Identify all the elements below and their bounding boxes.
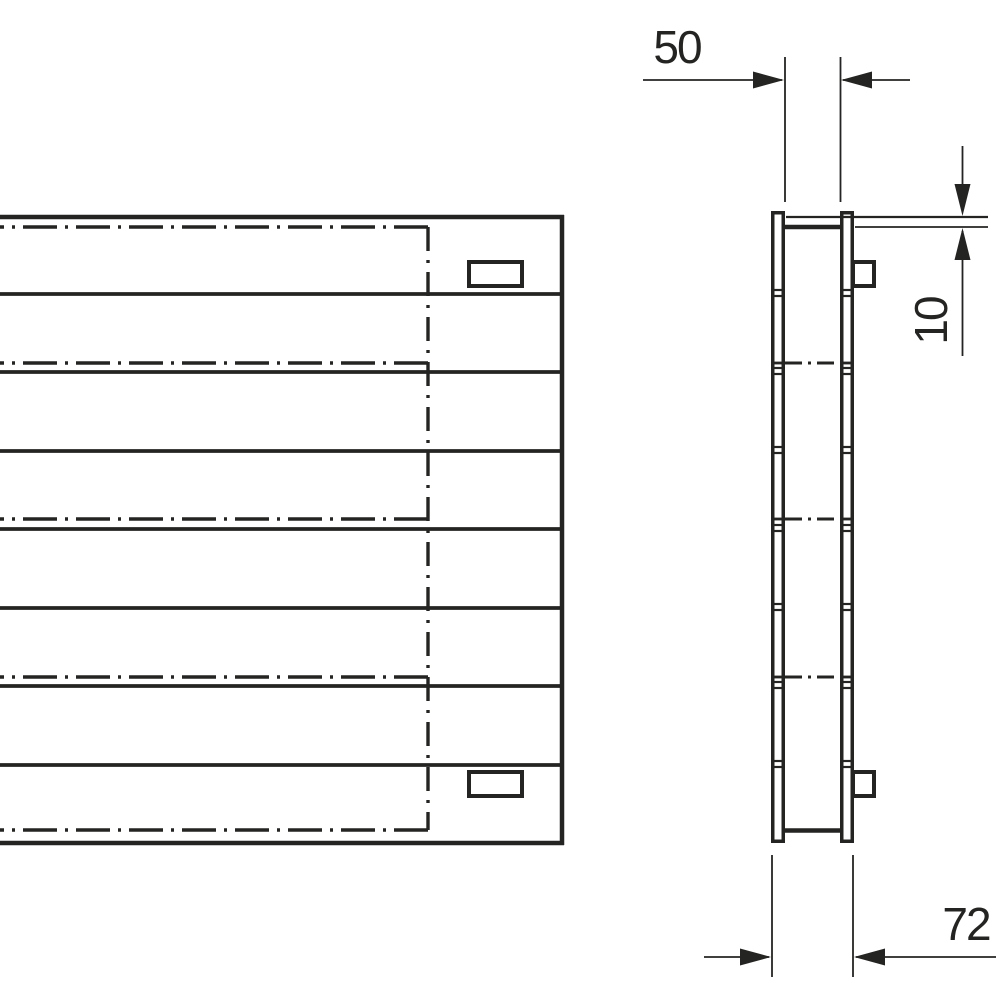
- front-bracket-bottom: [469, 772, 522, 796]
- dim50-arrow-right-icon: [841, 72, 872, 89]
- dim10-arrow-up-icon: [955, 228, 971, 260]
- side-front-column: [842, 213, 853, 842]
- dim10-arrow-down-icon: [955, 184, 971, 216]
- side-rear-column: [773, 213, 784, 842]
- dimension-width-50: 50: [643, 21, 910, 202]
- side-center-lines: [785, 363, 840, 677]
- dim50-label: 50: [653, 21, 701, 73]
- dim72-arrow-left-icon: [740, 949, 771, 966]
- front-bracket-top: [469, 262, 522, 286]
- dimension-offset-10: 10: [905, 146, 971, 356]
- dim10-label: 10: [905, 297, 957, 345]
- dimension-depth-72: 72: [704, 855, 996, 977]
- dim72-label: 72: [942, 898, 990, 950]
- dim50-arrow-left-icon: [753, 72, 784, 89]
- side-bracket-bottom: [853, 772, 874, 796]
- dim72-arrow-right-icon: [854, 949, 885, 966]
- radiator-technical-drawing: 50 10 72: [0, 0, 1000, 1000]
- side-bracket-top: [853, 262, 874, 286]
- front-view: [0, 215, 564, 845]
- technical-drawing-page: 50 10 72: [0, 0, 1000, 1000]
